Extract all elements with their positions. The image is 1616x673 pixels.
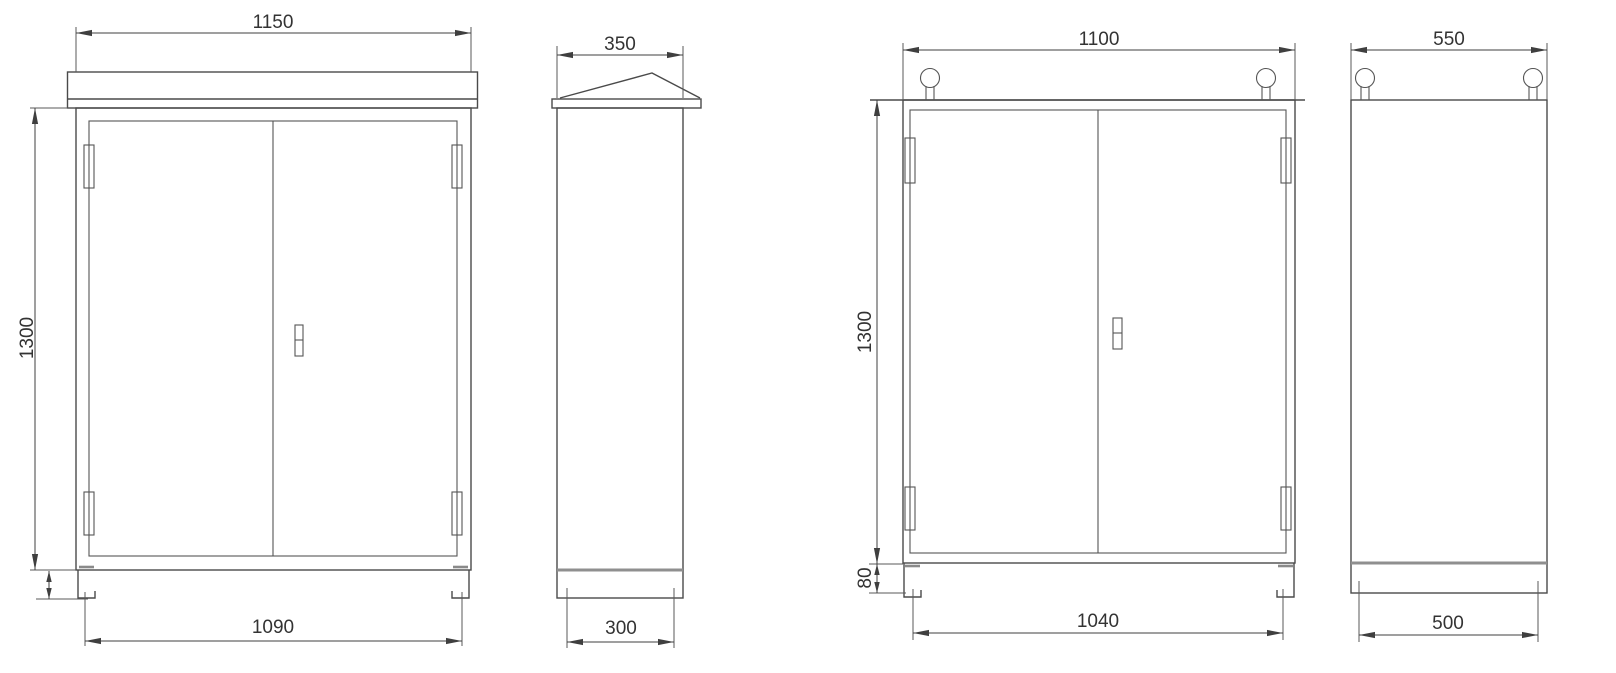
double-doors [905, 110, 1291, 553]
dim-foot-height-b: 80 [855, 564, 906, 593]
dim-top-depth-b: 550 [1351, 29, 1547, 100]
dim-label-top-width-a: 1150 [253, 12, 294, 33]
rain-canopy [68, 72, 478, 108]
dim-label-base-depth-a: 300 [605, 618, 637, 639]
dim-label-base-width-b: 1040 [1077, 611, 1119, 632]
dim-label-height-a: 1300 [17, 317, 38, 359]
dim-label-base-depth-b: 500 [1432, 613, 1464, 634]
canopy-strip [552, 99, 701, 108]
lifting-eye-right [1257, 69, 1276, 101]
dim-label-base-width-a: 1090 [252, 617, 294, 638]
drawing-canvas: 1150 1300 1090 [0, 0, 1616, 673]
lifting-eye-left [921, 69, 940, 101]
foot-channel [1277, 563, 1294, 597]
cabinet-b-side-view: 550 500 [1351, 29, 1547, 642]
dim-height-a: 1300 [17, 108, 76, 570]
cabinet-a-front-view: 1150 1300 1090 [17, 12, 478, 646]
double-doors [84, 121, 462, 556]
foot-bracket-right [452, 567, 469, 598]
dim-label-top-depth-b: 550 [1433, 29, 1465, 50]
lifting-eye-right [1524, 69, 1543, 101]
eye-ring-icon [921, 69, 940, 88]
dim-base-width-a: 1090 [85, 592, 462, 646]
door-handle [295, 325, 303, 356]
dim-height-b: 1300 [855, 100, 903, 564]
dim-base-depth-b: 500 [1359, 581, 1538, 642]
lifting-eye-left [1356, 69, 1375, 101]
cabinet-side-body [557, 108, 683, 598]
foot-channel [452, 570, 469, 598]
eye-ring-icon [1257, 69, 1276, 88]
dim-base-depth-a: 300 [567, 588, 674, 648]
foot-channel [78, 570, 95, 598]
eye-ring-icon [1524, 69, 1543, 88]
foot-bracket-left [78, 567, 95, 598]
door-handle [1113, 318, 1122, 349]
dim-foot-height-a [36, 571, 88, 599]
canopy-outline [68, 72, 478, 108]
cabinet-a-side-view: 350 300 [552, 34, 701, 648]
dim-top-depth-a: 350 [557, 34, 683, 98]
foot-bracket-right [1277, 563, 1294, 597]
sloped-roof [560, 73, 700, 98]
cabinet-b-front-view: 1100 1300 80 1040 [855, 29, 1305, 640]
eye-ring-icon [1356, 69, 1375, 88]
technical-drawing: 1150 1300 1090 [0, 0, 1616, 673]
dim-top-width-b: 1100 [903, 29, 1295, 100]
dim-label-top-depth-a: 350 [604, 34, 636, 55]
dim-base-width-b: 1040 [913, 589, 1283, 640]
dim-top-width-a: 1150 [76, 12, 471, 72]
cabinet-body [903, 100, 1295, 563]
dim-label-foot-height-b: 80 [855, 567, 876, 588]
dim-label-top-width-b: 1100 [1079, 29, 1120, 50]
dim-label-height-b: 1300 [855, 311, 876, 353]
cabinet-side-body [1351, 100, 1547, 593]
